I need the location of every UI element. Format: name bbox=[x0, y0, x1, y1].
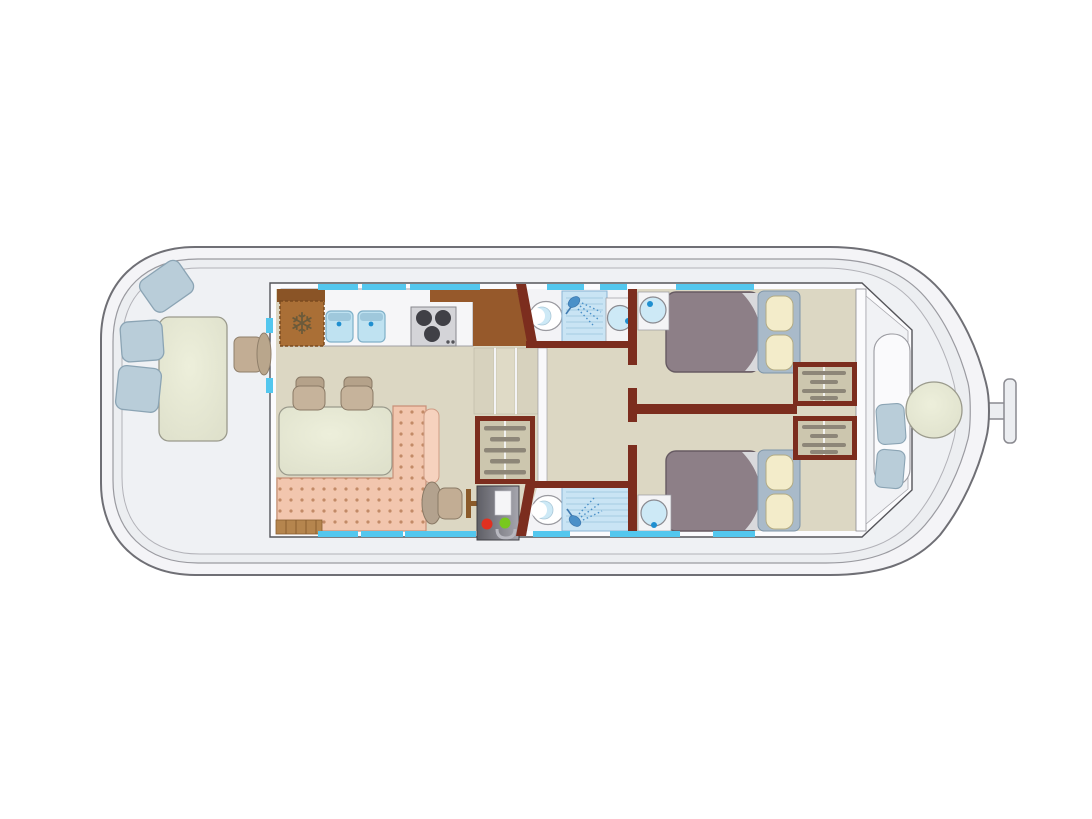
bed-duvet bbox=[666, 451, 760, 531]
electrical-panel bbox=[477, 486, 519, 540]
stern-seat bbox=[115, 365, 162, 413]
snowflake-icon: ❄ bbox=[289, 307, 314, 342]
window bbox=[405, 531, 476, 537]
bow-seat-cushion bbox=[874, 449, 905, 489]
stove-knob bbox=[451, 340, 454, 343]
panel-red-light bbox=[482, 519, 493, 530]
houseboat-floorplan: ❄ bbox=[0, 0, 1092, 819]
faucet-dot bbox=[337, 322, 342, 327]
wall-cabin-west-b bbox=[628, 388, 637, 422]
cabin-bow-wall bbox=[856, 289, 866, 531]
window bbox=[676, 284, 754, 290]
bow-cleat-bar bbox=[1004, 379, 1016, 443]
window bbox=[362, 284, 406, 290]
bathroom-aft bbox=[524, 486, 632, 531]
pillow bbox=[766, 494, 793, 529]
faucet-dot bbox=[651, 522, 657, 528]
toilet bbox=[531, 496, 564, 525]
window bbox=[713, 531, 755, 537]
cabin-washbasin bbox=[638, 495, 671, 531]
hanger bbox=[484, 470, 526, 475]
sink-right bbox=[358, 311, 385, 342]
wall-bathroom-south bbox=[526, 341, 637, 348]
stove bbox=[411, 307, 456, 346]
hanger bbox=[810, 396, 838, 400]
sofa-backrest bbox=[424, 409, 439, 483]
pillow bbox=[766, 296, 793, 331]
pillow bbox=[766, 455, 793, 490]
panel-green-light bbox=[500, 518, 511, 529]
door-jamb bbox=[266, 318, 273, 333]
window bbox=[361, 531, 403, 537]
bathroom-forward bbox=[524, 289, 636, 343]
bow-seat-cushion bbox=[876, 403, 907, 445]
window bbox=[533, 531, 570, 537]
hanger bbox=[802, 425, 846, 429]
cabin-washbasin bbox=[638, 292, 669, 330]
window bbox=[547, 284, 584, 290]
window bbox=[318, 284, 358, 290]
window bbox=[410, 284, 480, 290]
wall-cabin-divider bbox=[637, 404, 797, 414]
door-jamb bbox=[266, 378, 273, 393]
hanger bbox=[484, 448, 526, 453]
salon-chair-left bbox=[293, 377, 325, 410]
helm-chair-inside bbox=[422, 482, 462, 524]
wall-cabin-west-c bbox=[628, 445, 637, 531]
bed-duvet bbox=[666, 292, 760, 372]
stern-seat bbox=[120, 320, 165, 363]
closet-forward bbox=[793, 362, 857, 406]
burner bbox=[435, 310, 451, 326]
stern-table bbox=[159, 317, 227, 441]
toilet bbox=[529, 302, 562, 331]
hanger bbox=[490, 459, 520, 464]
hanger bbox=[810, 434, 838, 438]
kitchen-counter-corner bbox=[277, 289, 325, 302]
hanger bbox=[802, 371, 846, 375]
hanger bbox=[484, 426, 526, 431]
burner bbox=[416, 310, 432, 326]
fridge: ❄ bbox=[280, 301, 324, 346]
burner bbox=[424, 326, 440, 342]
hanger bbox=[490, 437, 520, 442]
faucet-dot bbox=[369, 322, 374, 327]
double-bed bbox=[666, 450, 800, 531]
hanger bbox=[810, 380, 838, 384]
salon-table bbox=[279, 407, 392, 475]
stove-knob bbox=[446, 340, 449, 343]
corridor-wardrobe bbox=[475, 416, 535, 484]
shower bbox=[562, 486, 632, 531]
window bbox=[610, 531, 680, 537]
sink-left bbox=[326, 311, 353, 342]
kitchen: ❄ bbox=[277, 289, 529, 346]
wall-bathroom-north bbox=[526, 481, 637, 488]
panel-switch bbox=[495, 491, 511, 515]
stairs-down bbox=[474, 348, 538, 414]
bow-table bbox=[906, 382, 962, 438]
salon-chair-right bbox=[341, 377, 373, 410]
entry-steps bbox=[276, 520, 322, 534]
hanger bbox=[802, 443, 846, 447]
wall-cabin-west-a bbox=[628, 289, 637, 365]
corridor-divider-wall bbox=[538, 348, 547, 484]
shower bbox=[562, 291, 607, 343]
hanger bbox=[802, 389, 846, 393]
double-bed bbox=[666, 291, 800, 373]
window bbox=[600, 284, 627, 290]
window bbox=[318, 531, 358, 537]
closet-aft bbox=[793, 416, 857, 460]
helm-seat-outside bbox=[234, 333, 271, 375]
pillow bbox=[766, 335, 793, 370]
faucet-dot bbox=[647, 301, 653, 307]
hanger bbox=[810, 450, 838, 454]
